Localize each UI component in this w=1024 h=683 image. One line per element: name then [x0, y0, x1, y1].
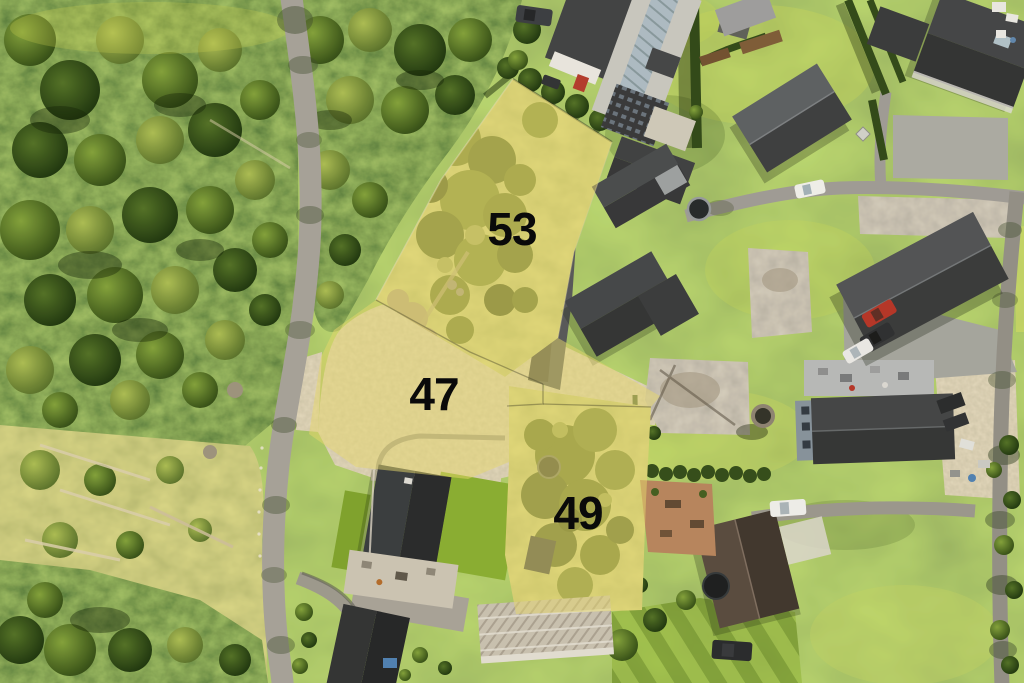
- plot-49-label: 49: [553, 487, 602, 539]
- plot-47-label: 47: [409, 368, 458, 420]
- plot-53-label: 53: [487, 203, 536, 255]
- aerial-photo-plots: 53 47 49: [0, 0, 1024, 683]
- warm-light-wash: [0, 0, 1024, 683]
